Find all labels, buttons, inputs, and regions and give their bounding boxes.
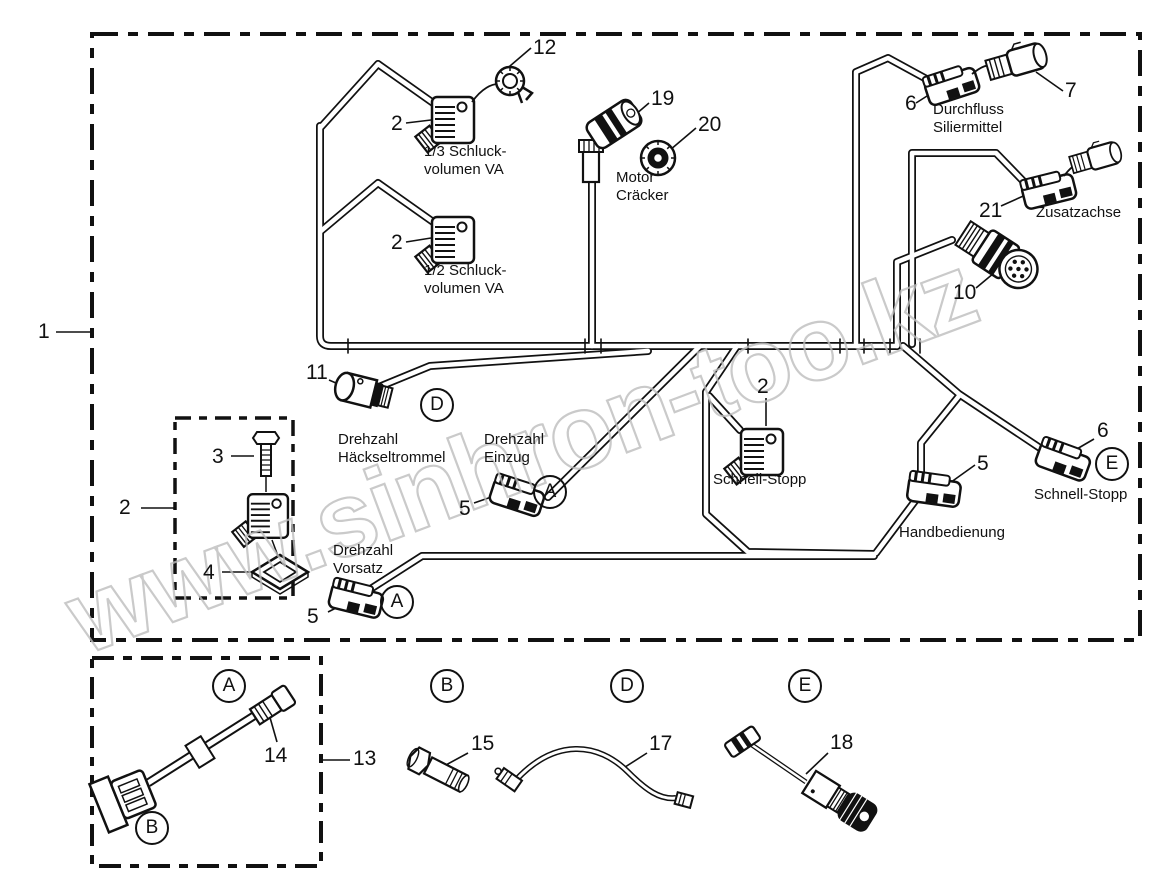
zusatzachse-barrel-connector bbox=[1067, 136, 1123, 175]
part-number-19: 19 bbox=[651, 87, 674, 111]
label-drehzahl-haeckseltrommel: Drehzahl Häckseltrommel bbox=[338, 431, 446, 467]
label-drehzahl-einzug: Drehzahl Einzug bbox=[484, 431, 544, 467]
part-number-2-schnellstopp: 2 bbox=[757, 375, 769, 399]
part-number-14: 14 bbox=[264, 744, 287, 768]
part-number-20: 20 bbox=[698, 113, 721, 137]
section-letter-b-legend: B bbox=[430, 669, 464, 703]
part-number-6-schnellstopp-e: 6 bbox=[1097, 419, 1109, 443]
label-zusatzachse: Zusatzachse bbox=[1036, 204, 1121, 222]
part-number-1: 1 bbox=[38, 320, 50, 344]
part-number-2-group: 2 bbox=[119, 496, 131, 520]
part-number-17: 17 bbox=[649, 732, 672, 756]
handbedienung-connector-5 bbox=[906, 471, 962, 508]
part-number-3: 3 bbox=[212, 445, 224, 469]
part-number-10: 10 bbox=[953, 281, 976, 305]
adapter-connector-14 bbox=[249, 685, 296, 726]
section-letter-d-legend: D bbox=[610, 669, 644, 703]
part-number-5-handbedienung: 5 bbox=[977, 452, 989, 476]
sealing-cap-connector bbox=[496, 67, 532, 103]
section-letter-d-main: D bbox=[420, 388, 454, 422]
part-number-2-schluck13: 2 bbox=[391, 112, 403, 136]
part-number-5-einzug: 5 bbox=[459, 497, 471, 521]
cable-sensor-18 bbox=[724, 726, 880, 835]
section-letter-b-adapter: B bbox=[135, 811, 169, 845]
part-number-5-vorsatz: 5 bbox=[307, 605, 319, 629]
part-number-21: 21 bbox=[979, 199, 1002, 223]
label-schluckvolumen-13: 1/3 Schluck- volumen VA bbox=[424, 143, 507, 179]
bolt-3 bbox=[253, 432, 279, 476]
cap-wire bbox=[472, 84, 498, 102]
part-number-2-schluck12: 2 bbox=[391, 231, 403, 255]
section-letter-a-einzug: A bbox=[533, 475, 567, 509]
part-number-12: 12 bbox=[533, 36, 556, 60]
haeckseltrommel-sensor-11 bbox=[332, 371, 393, 412]
label-motor-craecker: Motor Cräcker bbox=[616, 169, 669, 205]
label-drehzahl-vorsatz: Drehzahl Vorsatz bbox=[333, 542, 393, 578]
part-number-13: 13 bbox=[353, 747, 376, 771]
section-letter-e-main: E bbox=[1095, 447, 1129, 481]
part-number-18: 18 bbox=[830, 731, 853, 755]
curved-cable-17 bbox=[492, 749, 694, 808]
section-letter-a-vorsatz: A bbox=[380, 585, 414, 619]
part-number-15: 15 bbox=[471, 732, 494, 756]
part-number-4: 4 bbox=[203, 561, 215, 585]
section-letter-a-adapter: A bbox=[212, 669, 246, 703]
label-durchfluss-siliermittel: Durchfluss Siliermittel bbox=[933, 101, 1004, 137]
schnellstopp-e-connector-6 bbox=[1034, 436, 1093, 482]
durchfluss-connector-6 bbox=[922, 62, 981, 107]
label-schnellstopp-right: Schnell-Stopp bbox=[1034, 486, 1127, 504]
label-handbedienung: Handbedienung bbox=[899, 524, 1005, 542]
part-number-6-durchfluss: 6 bbox=[905, 92, 917, 116]
section-letter-e-legend: E bbox=[788, 669, 822, 703]
bolt-sensor-15 bbox=[404, 745, 472, 796]
part-number-7: 7 bbox=[1065, 79, 1077, 103]
label-schluckvolumen-12: 1/2 Schluck- volumen VA bbox=[424, 262, 507, 298]
barrel-connector-7 bbox=[983, 36, 1049, 82]
label-schnellstopp-center: Schnell-Stopp bbox=[713, 471, 806, 489]
part-number-11: 11 bbox=[306, 361, 328, 385]
wiring-harness-parts-diagram: www.sinhron-too.kz 1 12 2 2 19 20 6 7 21… bbox=[0, 0, 1173, 887]
